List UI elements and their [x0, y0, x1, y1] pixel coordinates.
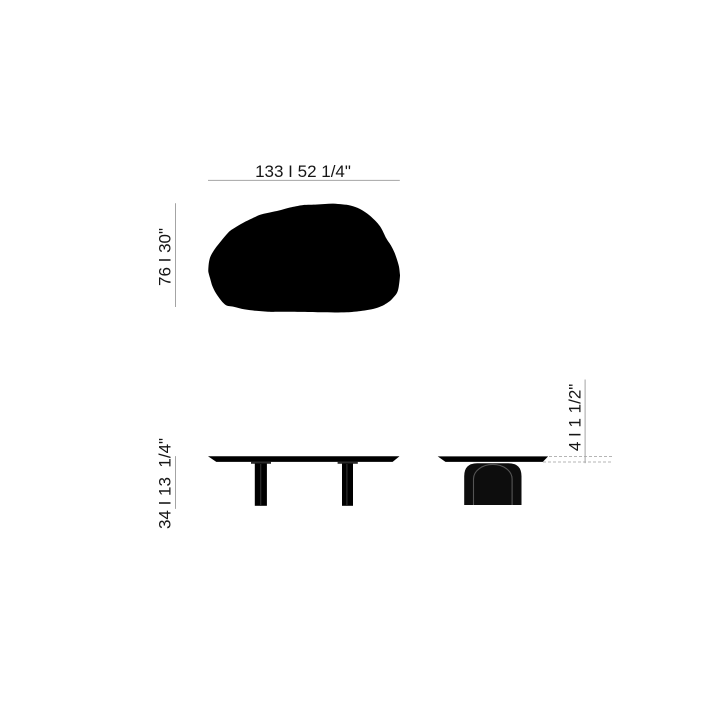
svg-text:133 I 52 1/4": 133 I 52 1/4"	[255, 162, 351, 181]
svg-text:34 I 13 1/4": 34 I 13 1/4"	[156, 438, 175, 529]
svg-text:76 I 30": 76 I 30"	[156, 228, 175, 286]
svg-text:4 I 1 1/2": 4 I 1 1/2"	[566, 384, 585, 451]
